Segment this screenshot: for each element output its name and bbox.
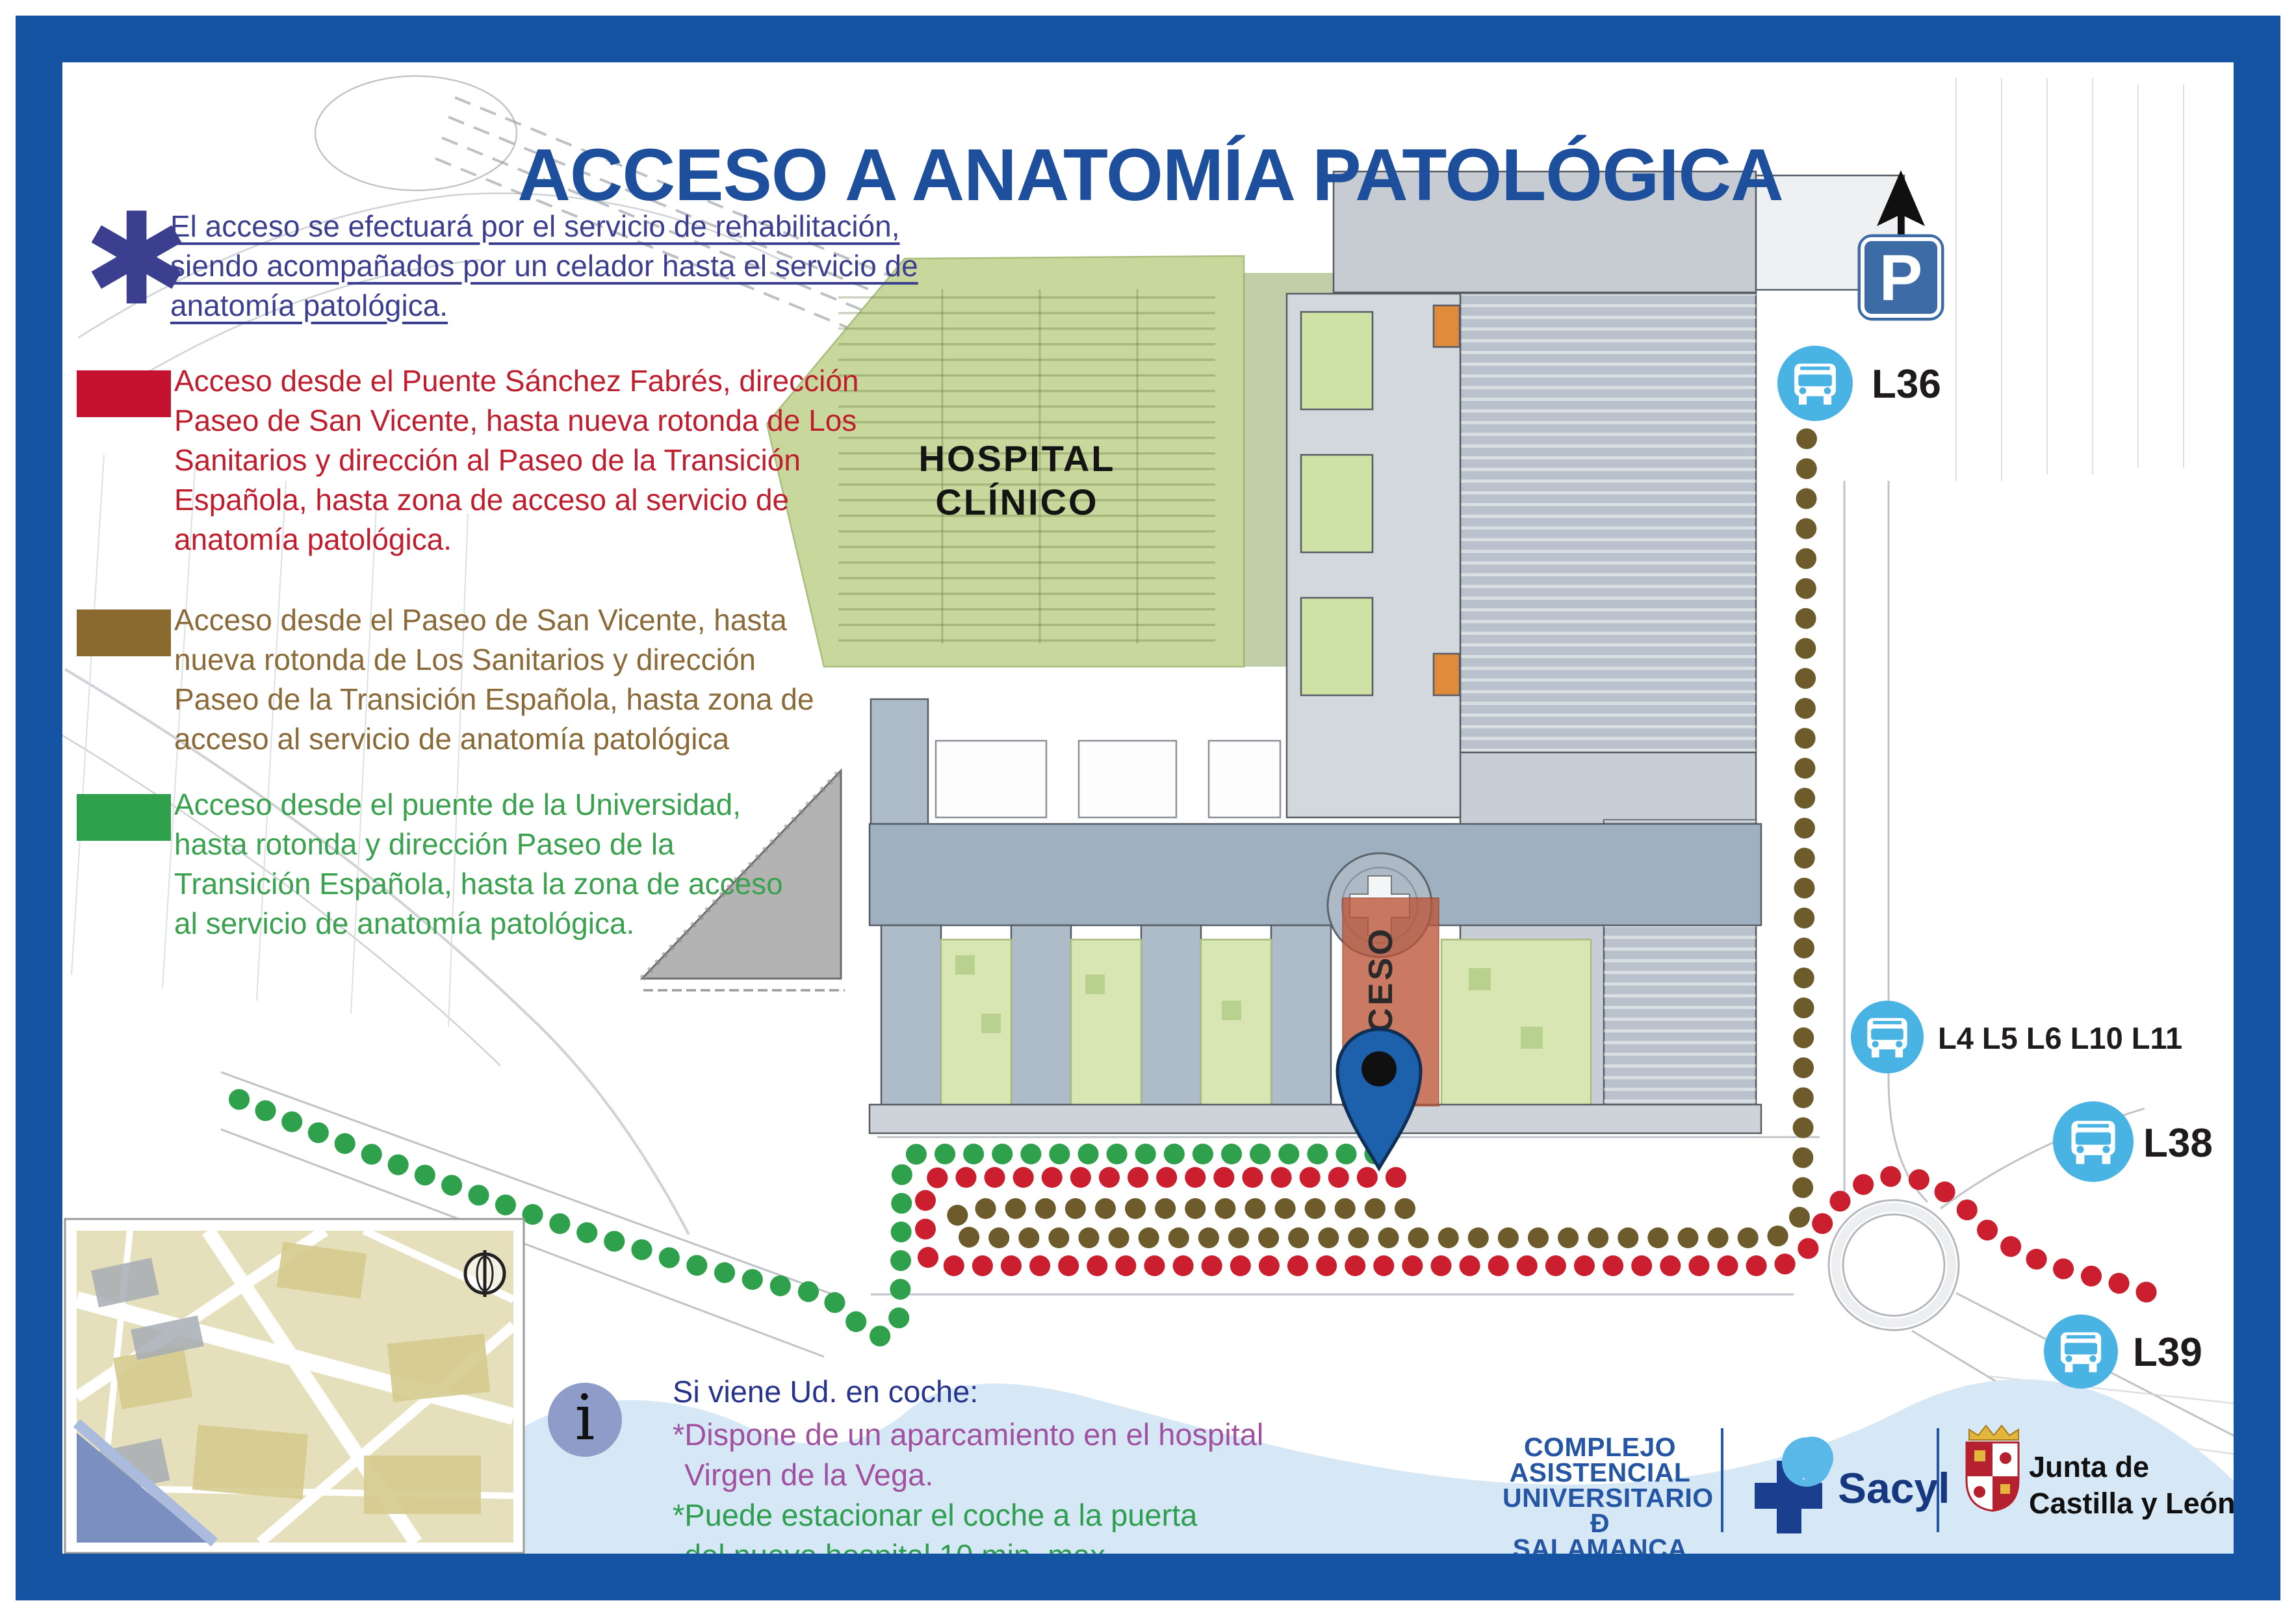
footer-divider-2	[1937, 1428, 1939, 1532]
page-title: ACCESO A ANATOMÍA PATOLÓGICA	[390, 133, 1911, 217]
access-note: El acceso se efectuará por el servicio d…	[170, 207, 927, 326]
svg-text:P: P	[1879, 242, 1923, 314]
info-line-parking-2: Virgen de la Vega.	[684, 1456, 933, 1494]
junta-text-line2: Castilla y León	[2029, 1487, 2236, 1520]
bus-stop-l39: L39	[2044, 1315, 2202, 1389]
legend-text-green: Acceso desde el puente de la Universidad…	[174, 785, 785, 943]
footer-divider-1	[1721, 1428, 1723, 1532]
svg-text:L4 L5 L6 L10 L11: L4 L5 L6 L10 L11	[1938, 1021, 2182, 1055]
legend-text-brown: Acceso desde el Paseo de San Vicente, ha…	[174, 600, 814, 759]
bus-stop-l38: L38	[2053, 1101, 2213, 1182]
info-line-parking-1: *Dispone de un aparcamiento en el hospit…	[673, 1415, 1263, 1454]
inset-city-map	[65, 1219, 524, 1553]
parking-sign-icon: P	[1859, 236, 1942, 319]
svg-text:HOSPITAL: HOSPITAL	[919, 438, 1116, 479]
legend-swatch-brown	[77, 609, 171, 656]
svg-text:CLÍNICO: CLÍNICO	[935, 481, 1098, 522]
complejo-logo-text: COMPLEJO ASISTENCIAL UNIVERSITARIO Ð SAL…	[1503, 1435, 1697, 1561]
roundabout	[1829, 1200, 1959, 1330]
svg-text:L39: L39	[2133, 1330, 2202, 1375]
info-heading: Si viene Ud. en coche:	[673, 1372, 978, 1411]
bus-stop-l36: L36	[1777, 346, 1941, 421]
bus-stop-l4-l5-l6-l10-l11: L4 L5 L6 L10 L11	[1851, 1001, 2182, 1073]
legend-text-red: Acceso desde el Puente Sánchez Fabrés, d…	[174, 361, 879, 559]
legend-swatch-green	[77, 794, 171, 841]
junta-shield-icon	[1967, 1426, 2019, 1511]
info-line-street-1: *Puede estacionar el coche a la puerta	[673, 1496, 1197, 1535]
svg-text:L38: L38	[2143, 1121, 2213, 1166]
info-icon: i	[548, 1383, 622, 1457]
svg-text:L36: L36	[1872, 362, 1941, 407]
access-map-poster: ACCESO P	[0, 0, 2296, 1616]
junta-text-line1: Junta de	[2029, 1450, 2149, 1484]
info-line-street-2: del nuevo hospital 10 min. max.	[684, 1536, 1114, 1575]
legend-swatch-red	[77, 370, 171, 417]
sacyl-logo-text: Sacyl	[1838, 1463, 1950, 1513]
